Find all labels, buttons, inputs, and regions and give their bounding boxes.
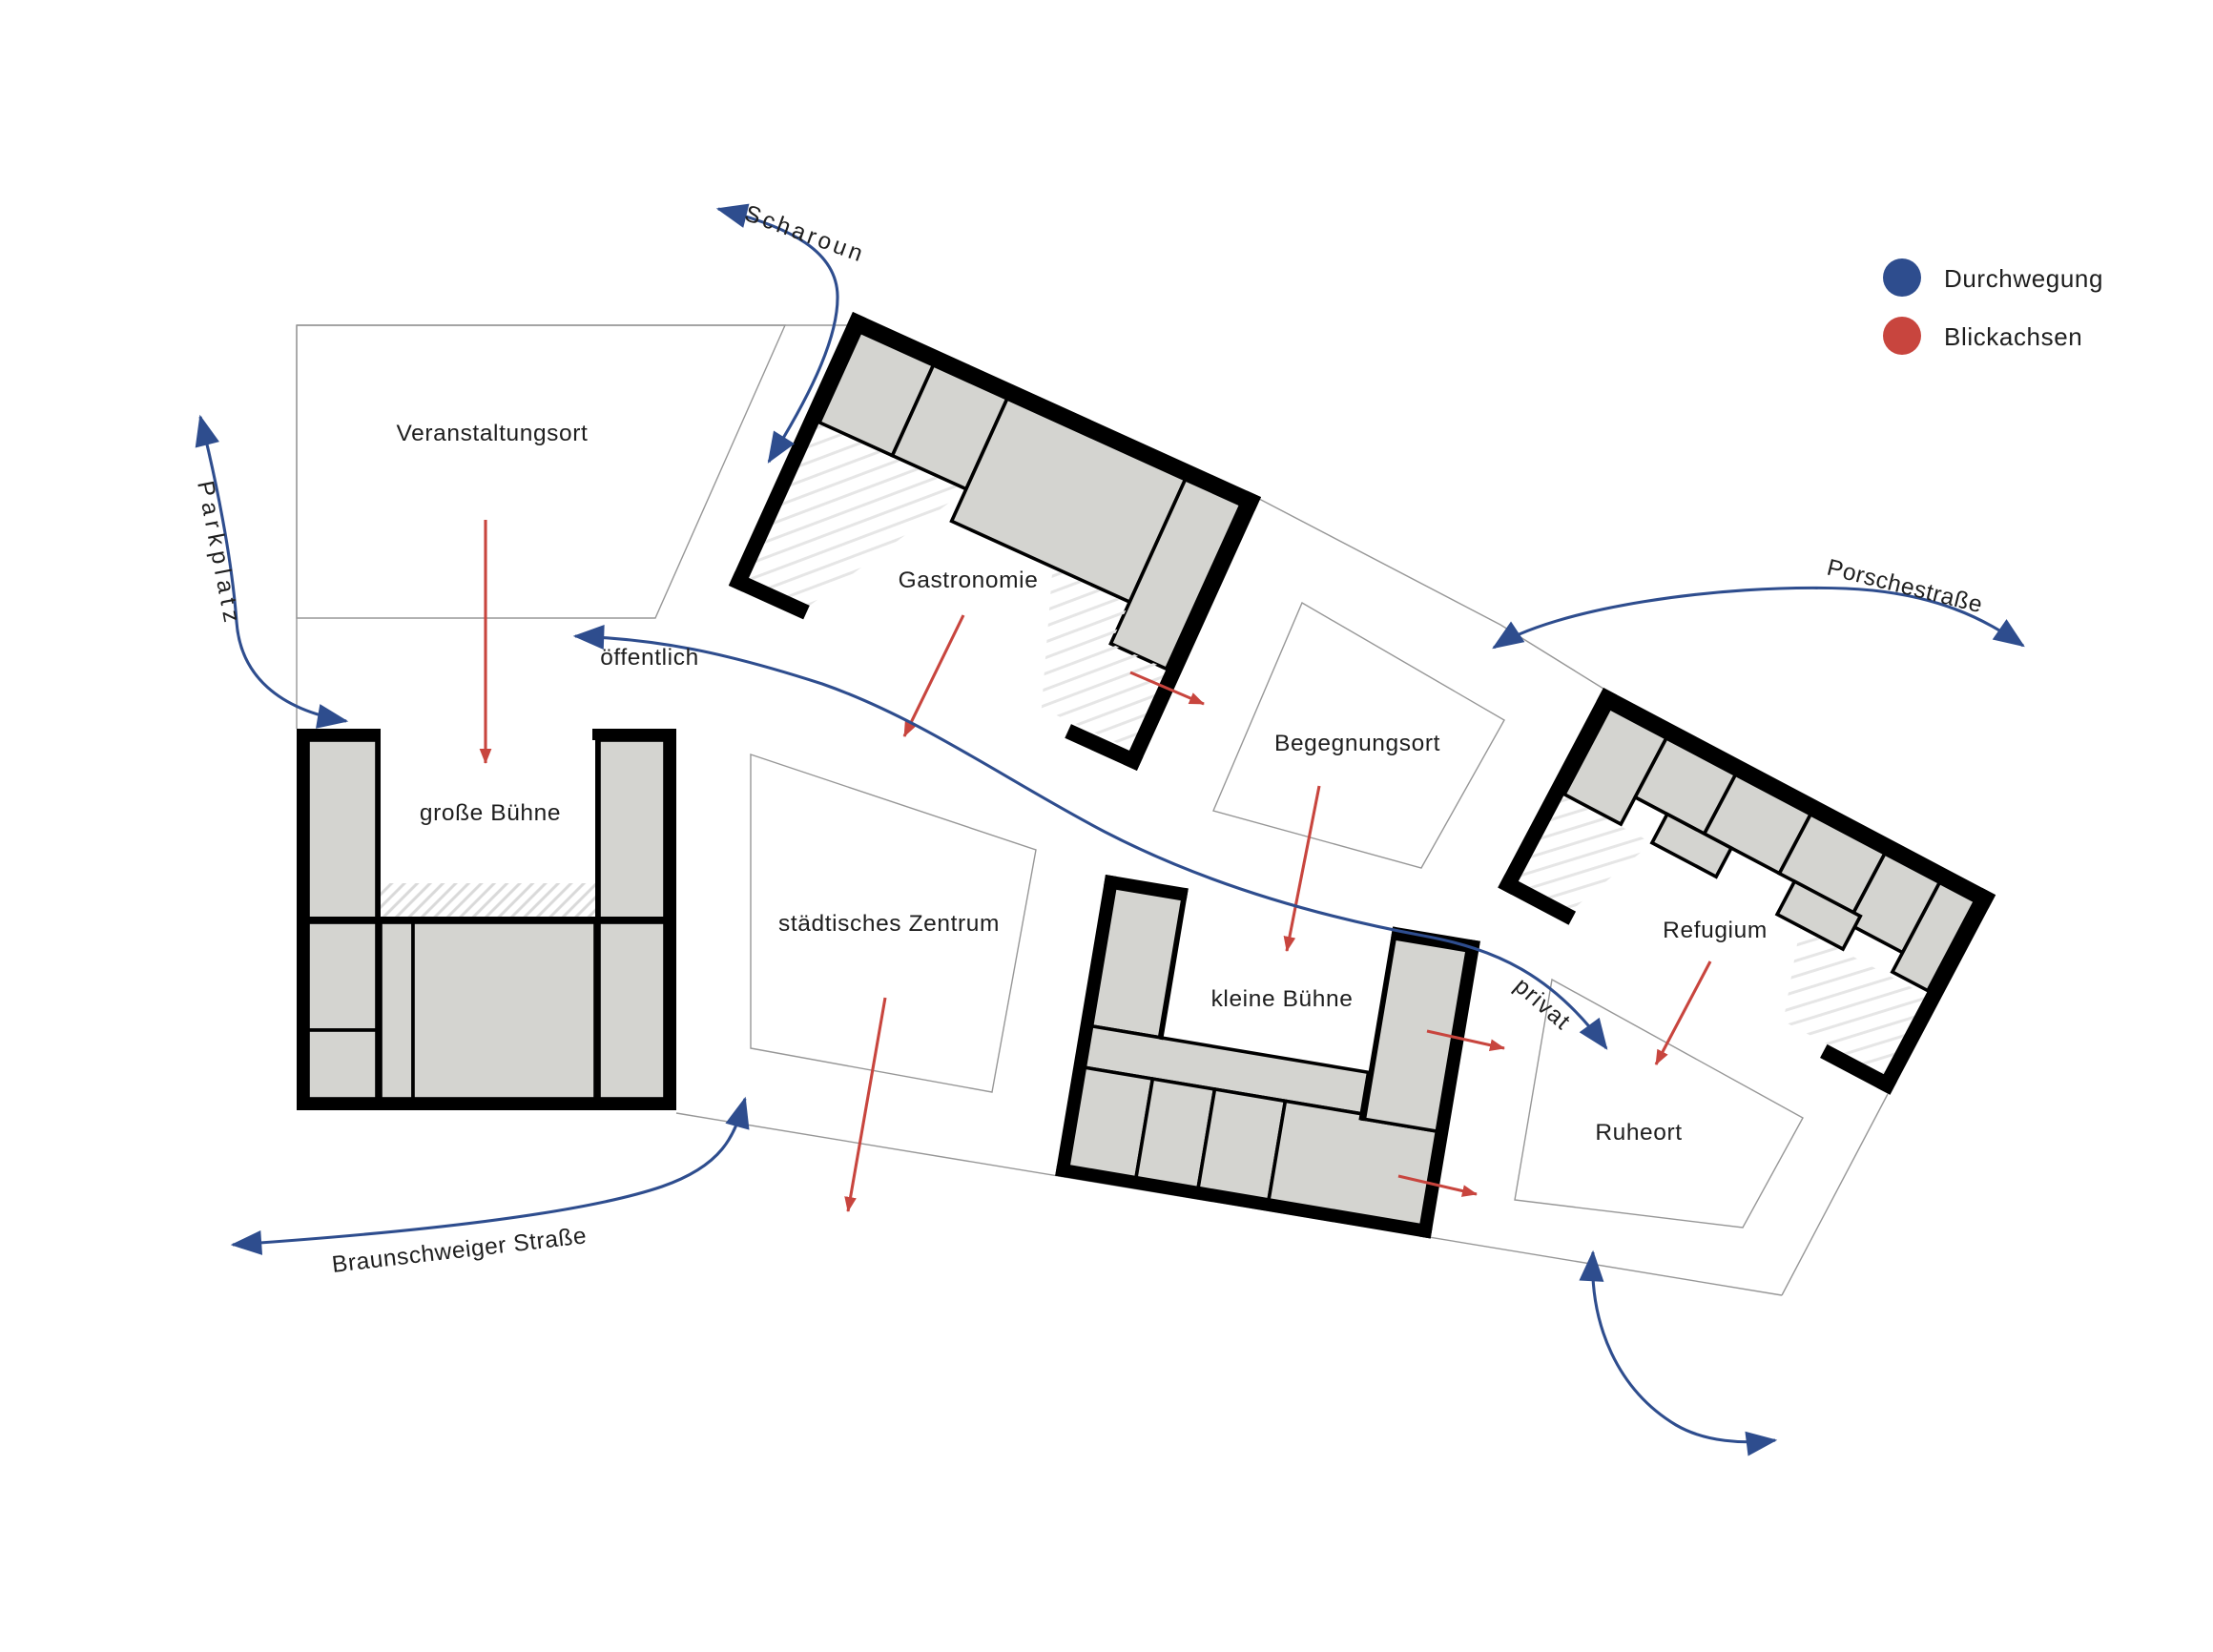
svg-text:Parkplatz: Parkplatz (192, 479, 245, 630)
svg-text:Scharoun: Scharoun (741, 200, 869, 268)
svg-text:Durchwegung: Durchwegung (1944, 264, 2103, 293)
svg-text:städtisches Zentrum: städtisches Zentrum (778, 911, 1000, 937)
svg-text:Refugium: Refugium (1663, 918, 1768, 943)
svg-text:Begegnungsort: Begegnungsort (1274, 731, 1440, 756)
svg-text:öffentlich: öffentlich (600, 645, 699, 671)
svg-text:Veranstaltungsort: Veranstaltungsort (397, 421, 589, 446)
svg-text:Blickachsen: Blickachsen (1944, 322, 2082, 351)
svg-text:große Bühne: große Bühne (420, 800, 561, 826)
svg-text:Gastronomie: Gastronomie (899, 568, 1039, 593)
svg-text:Braunschweiger Straße: Braunschweiger Straße (331, 1223, 589, 1278)
svg-text:Ruheort: Ruheort (1595, 1120, 1682, 1146)
svg-text:Porschestraße: Porschestraße (1825, 555, 1986, 619)
svg-text:kleine Bühne: kleine Bühne (1211, 986, 1354, 1012)
